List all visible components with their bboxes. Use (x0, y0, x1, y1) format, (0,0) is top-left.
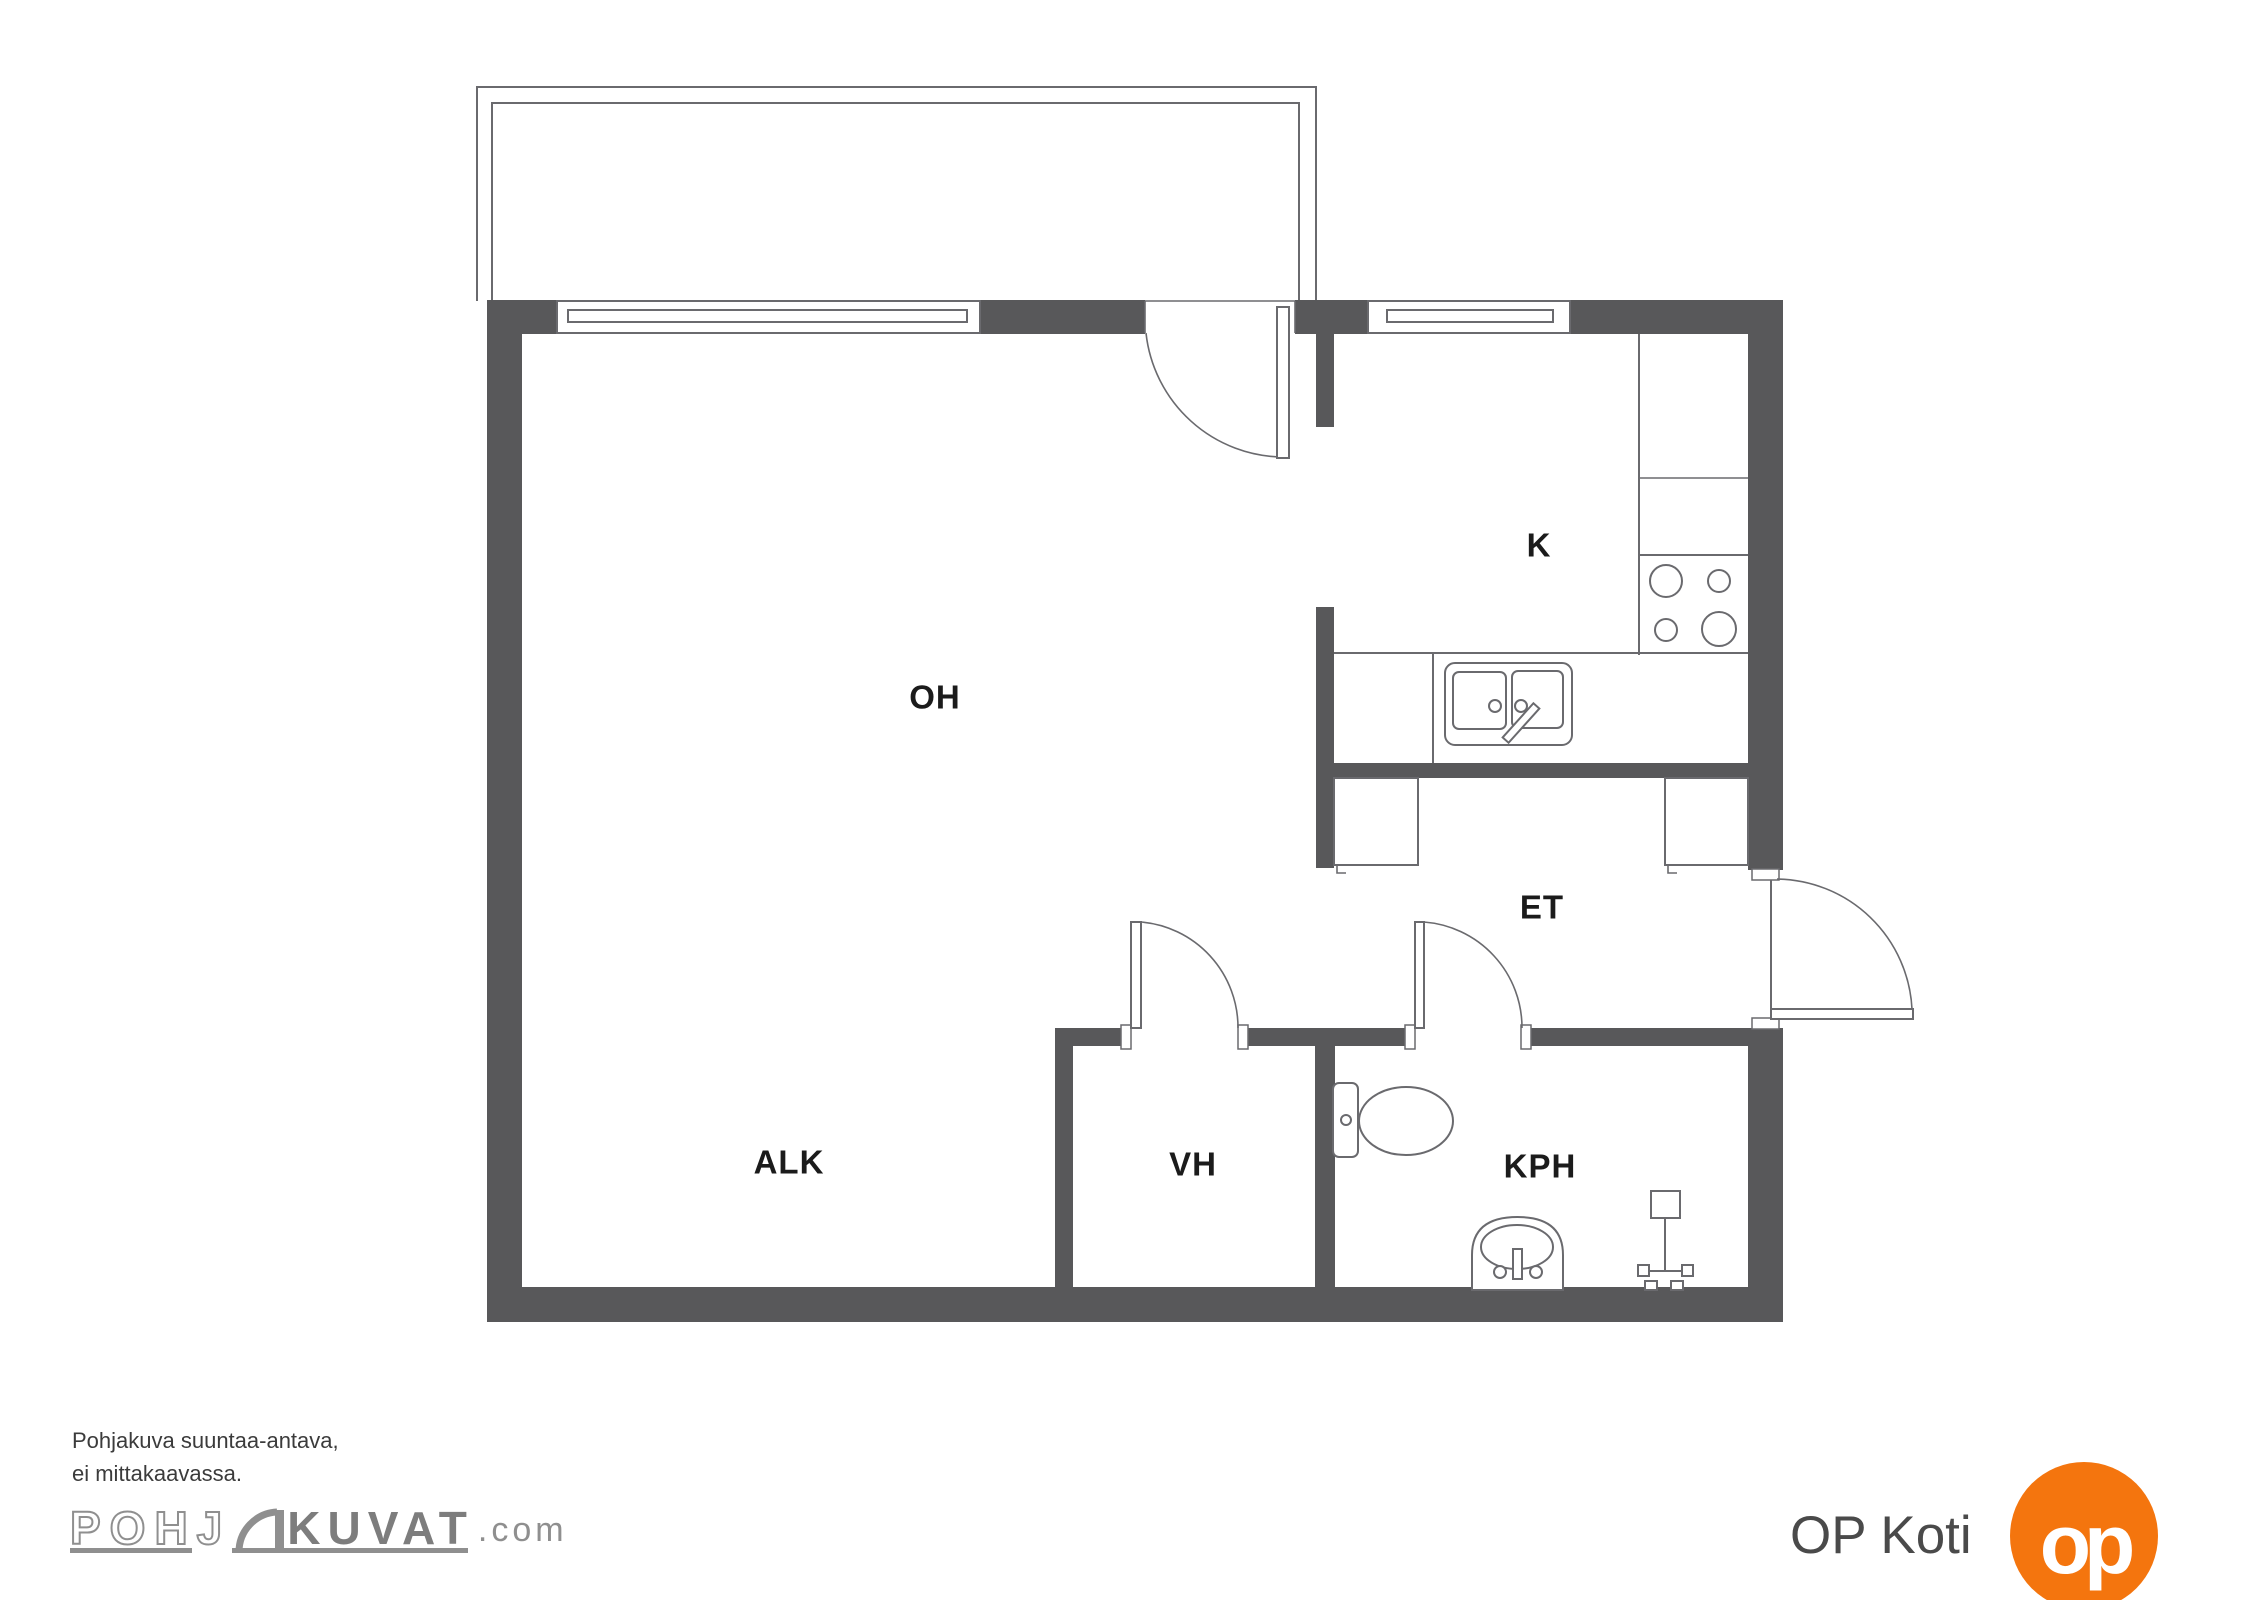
pohjakuvat-logo-part2: KUVAT (287, 1506, 474, 1550)
wall-bottom (487, 1287, 1783, 1322)
door-jambs (1121, 869, 1779, 1049)
op-logo-icon: op (2008, 1460, 2160, 1600)
wall-closet-bathroom-divider (1315, 1046, 1335, 1287)
op-logo-monogram: op (2039, 1497, 2131, 1591)
bathroom-sink-icon (1472, 1217, 1563, 1290)
wall-top-seg3 (1295, 300, 1368, 334)
closet-door (1131, 922, 1238, 1028)
balcony-door-leaf (1277, 307, 1289, 458)
entrance-door (1771, 879, 1913, 1019)
floor-plan-page: OH K ET ALK VH KPH Pohjakuva suuntaa-ant… (0, 0, 2262, 1600)
logo-underline-left (70, 1548, 192, 1553)
wall-right-lower (1748, 1028, 1783, 1322)
living-room-window (557, 301, 980, 333)
wall-top-seg2 (980, 300, 1145, 334)
balcony-outline (477, 87, 1316, 301)
bathroom-door (1415, 922, 1522, 1028)
room-label-closet: VH (1169, 1146, 1217, 1183)
wall-left (487, 300, 522, 1322)
outer-walls (487, 300, 1783, 1322)
bathroom-door-leaf (1415, 922, 1424, 1028)
disclaimer-line2: ei mittakaavassa. (72, 1457, 339, 1490)
disclaimer-line1: Pohjakuva suuntaa-antava, (72, 1424, 339, 1457)
pohjakuvat-logo-part1: POHJ (70, 1506, 231, 1550)
room-label-living: OH (909, 679, 961, 716)
room-label-entry: ET (1520, 889, 1564, 926)
wall-right-upper (1748, 300, 1783, 870)
pohjakuvat-logo: POHJ KUVAT .com (70, 1502, 568, 1550)
disclaimer-text: Pohjakuva suuntaa-antava, ei mittakaavas… (72, 1424, 339, 1490)
room-label-bathroom: KPH (1504, 1148, 1577, 1185)
logo-underline-right (232, 1548, 468, 1553)
wall-closet-left (1055, 1028, 1073, 1287)
bathroom-door-arc (1424, 922, 1522, 1028)
balcony-door (1145, 301, 1295, 458)
pohjakuvat-logo-suffix: .com (478, 1510, 568, 1550)
toilet-icon (1333, 1083, 1453, 1157)
balcony-door-arc (1146, 333, 1283, 457)
hall-wardrobes (1334, 778, 1748, 873)
door-arc-icon (235, 1506, 285, 1552)
entrance-door-leaf (1771, 1009, 1913, 1019)
stove-icon (1650, 565, 1736, 646)
closet-door-leaf (1131, 922, 1141, 1028)
entrance-door-arc (1777, 879, 1912, 1009)
wall-top-seg1 (487, 300, 557, 334)
wardrobe-icon (1334, 778, 1418, 865)
closet-door-arc (1141, 922, 1238, 1028)
shower-icon (1638, 1191, 1693, 1290)
wall-hall-seg3 (1531, 1028, 1749, 1046)
room-label-kitchen: K (1527, 527, 1552, 564)
kitchen-window (1368, 301, 1570, 333)
wall-kitchen-bottom (1316, 763, 1749, 778)
wall-hall-seg2 (1248, 1028, 1405, 1046)
floor-plan-drawing: OH K ET ALK VH KPH (0, 0, 2262, 1600)
wall-kitchen-divider-lower (1316, 607, 1334, 868)
wall-kitchen-divider-upper (1316, 334, 1334, 427)
wardrobe-icon (1665, 778, 1748, 865)
op-koti-label: OP Koti (1790, 1501, 1972, 1571)
room-label-alcove: ALK (754, 1144, 825, 1181)
op-koti-branding: OP Koti op (1790, 1460, 2160, 1600)
kitchen-sink-icon (1445, 663, 1572, 745)
